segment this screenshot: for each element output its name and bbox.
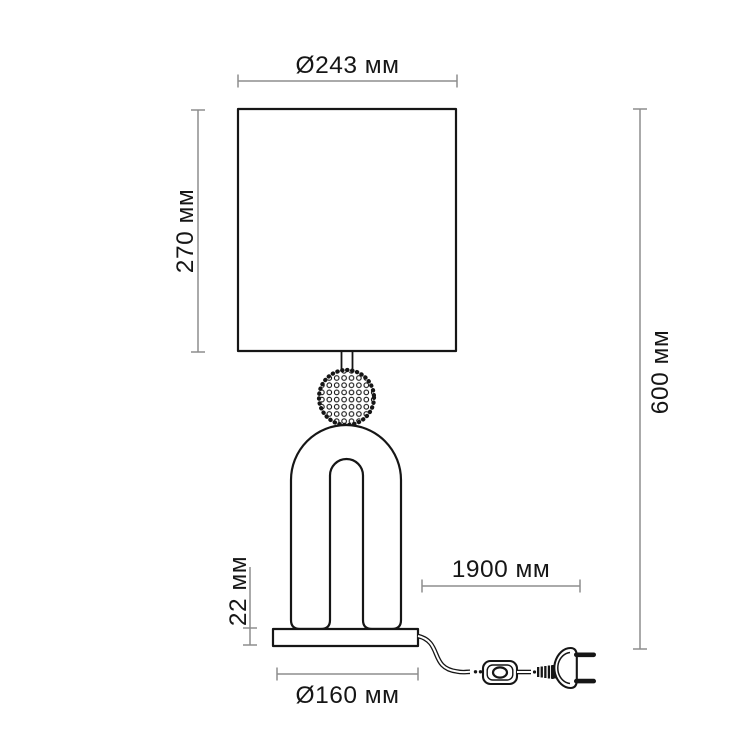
cord-to-plug xyxy=(517,670,536,673)
dimension-base-height: 22 мм xyxy=(225,556,257,645)
plug-pin-bottom xyxy=(574,679,596,684)
switch-button xyxy=(493,667,507,677)
dimension-total-height: 600 мм xyxy=(633,109,674,649)
dimension-shade-diameter: Ø243 мм xyxy=(238,52,457,88)
inline-switch xyxy=(483,661,517,684)
label-base-height: 22 мм xyxy=(225,556,252,626)
arch-body xyxy=(291,425,401,629)
lamp-dimension-drawing: Ø243 мм 270 мм 600 мм 22 мм 1900 мм Ø160… xyxy=(0,0,740,740)
power-cord xyxy=(418,636,482,674)
label-cord-length: 1900 мм xyxy=(452,556,551,583)
label-total-height: 600 мм xyxy=(647,330,674,414)
drawing-canvas: Ø243 мм 270 мм 600 мм 22 мм 1900 мм Ø160… xyxy=(0,0,740,740)
label-base-diameter: Ø160 мм xyxy=(296,682,400,709)
decorative-sphere xyxy=(319,370,375,426)
lampshade xyxy=(238,109,456,351)
dimension-cord-length: 1900 мм xyxy=(422,556,580,593)
label-shade-height: 270 мм xyxy=(172,189,199,273)
plug-pin-top xyxy=(574,653,596,658)
dimension-shade-height: 270 мм xyxy=(172,110,205,352)
dimension-base-diameter: Ø160 мм xyxy=(277,668,418,710)
base-plate xyxy=(273,629,418,646)
label-shade-diameter: Ø243 мм xyxy=(296,52,400,79)
power-plug xyxy=(537,648,596,688)
